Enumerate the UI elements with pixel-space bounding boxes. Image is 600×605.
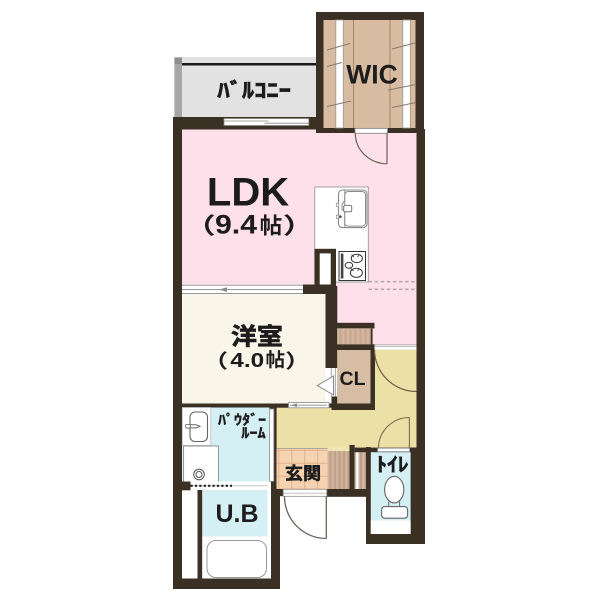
svg-text:9.4: 9.4: [215, 209, 257, 239]
svg-text:WIC: WIC: [346, 60, 398, 90]
svg-text:U.B: U.B: [215, 500, 258, 528]
svg-text:LDK: LDK: [207, 171, 289, 215]
svg-text:4.0: 4.0: [230, 349, 264, 372]
svg-text:CL: CL: [340, 368, 366, 390]
